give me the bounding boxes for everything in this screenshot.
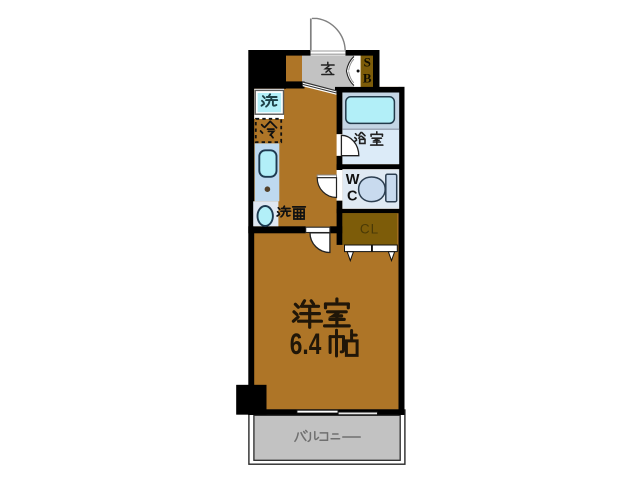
svg-text:W: W bbox=[346, 172, 360, 188]
svg-text:C: C bbox=[347, 189, 358, 205]
svg-text:CL: CL bbox=[360, 222, 379, 237]
svg-text:B: B bbox=[363, 70, 372, 85]
svg-text:6.4: 6.4 bbox=[290, 328, 322, 361]
svg-text:S: S bbox=[364, 54, 371, 69]
